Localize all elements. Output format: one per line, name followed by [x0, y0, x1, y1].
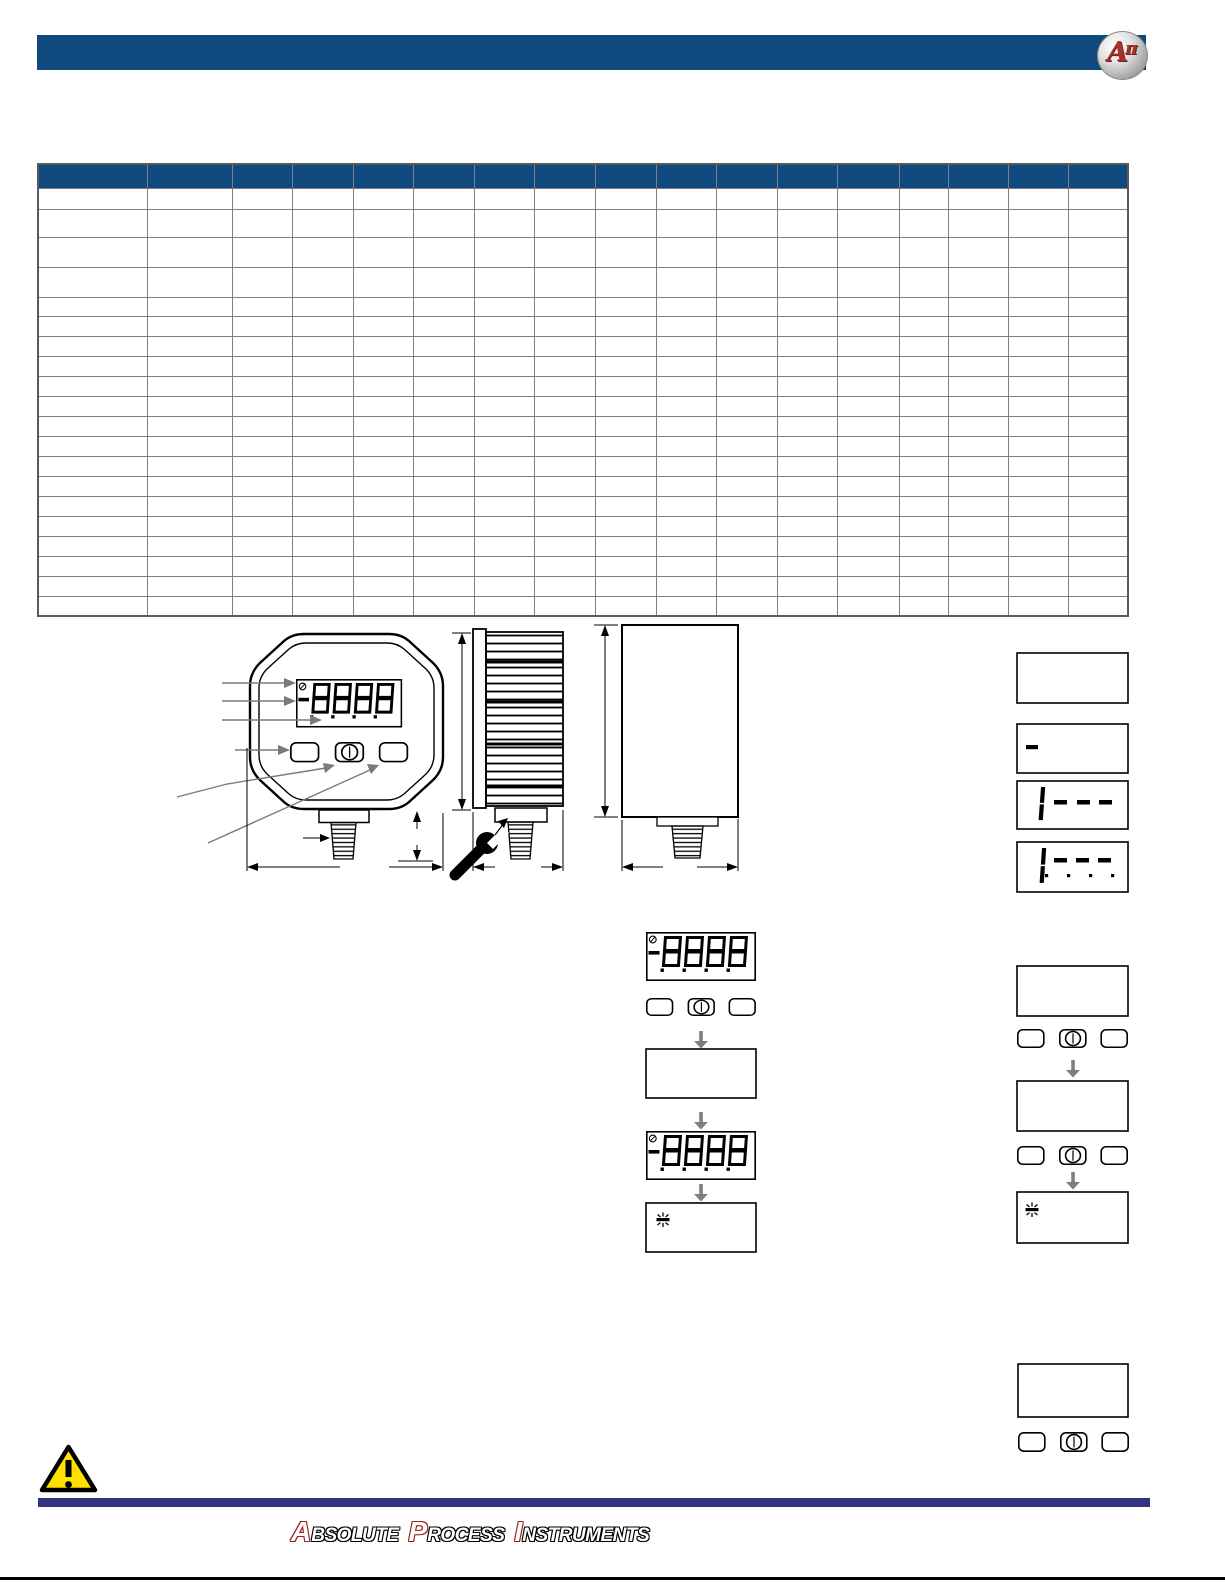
- flow-blank-display: [646, 1049, 756, 1098]
- flow-blank-display: [1018, 1364, 1128, 1417]
- bottom-rule: [0, 1577, 1225, 1580]
- flow-lcd-display-1: [647, 933, 755, 980]
- logo-letter-pi: π: [1125, 39, 1137, 59]
- datasheet-page: A π: [0, 0, 1225, 1585]
- gauge-back-view: [594, 625, 738, 871]
- brand-word: Process: [409, 1516, 505, 1548]
- api-logo: A π: [1097, 31, 1148, 80]
- technical-diagram: [0, 615, 1225, 1460]
- lcd-sample-blank: [1017, 653, 1128, 703]
- lcd-sample-minus: [1017, 724, 1128, 773]
- brand-wordmark: AbsoluteProcessInstruments: [291, 1516, 659, 1550]
- lcd-sample-dashes-dots: [1017, 842, 1128, 892]
- flow-lcd-display-2: [647, 1132, 755, 1179]
- flow-down-arrow: [1066, 1172, 1080, 1190]
- flow-down-arrow: [694, 1031, 708, 1049]
- ribbed-housing: [486, 632, 563, 806]
- gauge-front-view: [177, 633, 471, 871]
- flow-button-row: [1018, 1030, 1127, 1047]
- flow-down-arrow: [694, 1184, 708, 1202]
- flow-blink-display: [646, 1203, 756, 1252]
- gauge-side-view: [455, 629, 563, 875]
- flow-button-row: [647, 999, 755, 1016]
- spec-table: [37, 163, 1129, 617]
- flow-blank-display: [1017, 1081, 1128, 1131]
- button-flow-right: [1017, 966, 1128, 1243]
- flow-blink-display: [1017, 1192, 1128, 1243]
- header-bar: [37, 35, 1146, 70]
- display-samples-column: [1017, 653, 1128, 892]
- lcd-sample-dashes: [1017, 781, 1128, 829]
- footer-bar: [38, 1498, 1150, 1507]
- flow-button-row: [1018, 1147, 1127, 1164]
- brand-word: Instruments: [514, 1516, 649, 1548]
- pressure-port-front: [319, 810, 369, 859]
- button-flow-middle: [646, 933, 756, 1252]
- flow-down-arrow: [694, 1112, 708, 1130]
- button-flow-bottom-right: [1018, 1364, 1128, 1451]
- pressure-port-back: [672, 826, 703, 858]
- warning-icon: [39, 1444, 98, 1493]
- flow-blank-display: [1017, 966, 1128, 1016]
- brand-word: Absolute: [291, 1516, 399, 1548]
- flow-button-row: [1019, 1433, 1128, 1451]
- gauge-buttons: [291, 743, 408, 762]
- flow-down-arrow: [1066, 1060, 1080, 1078]
